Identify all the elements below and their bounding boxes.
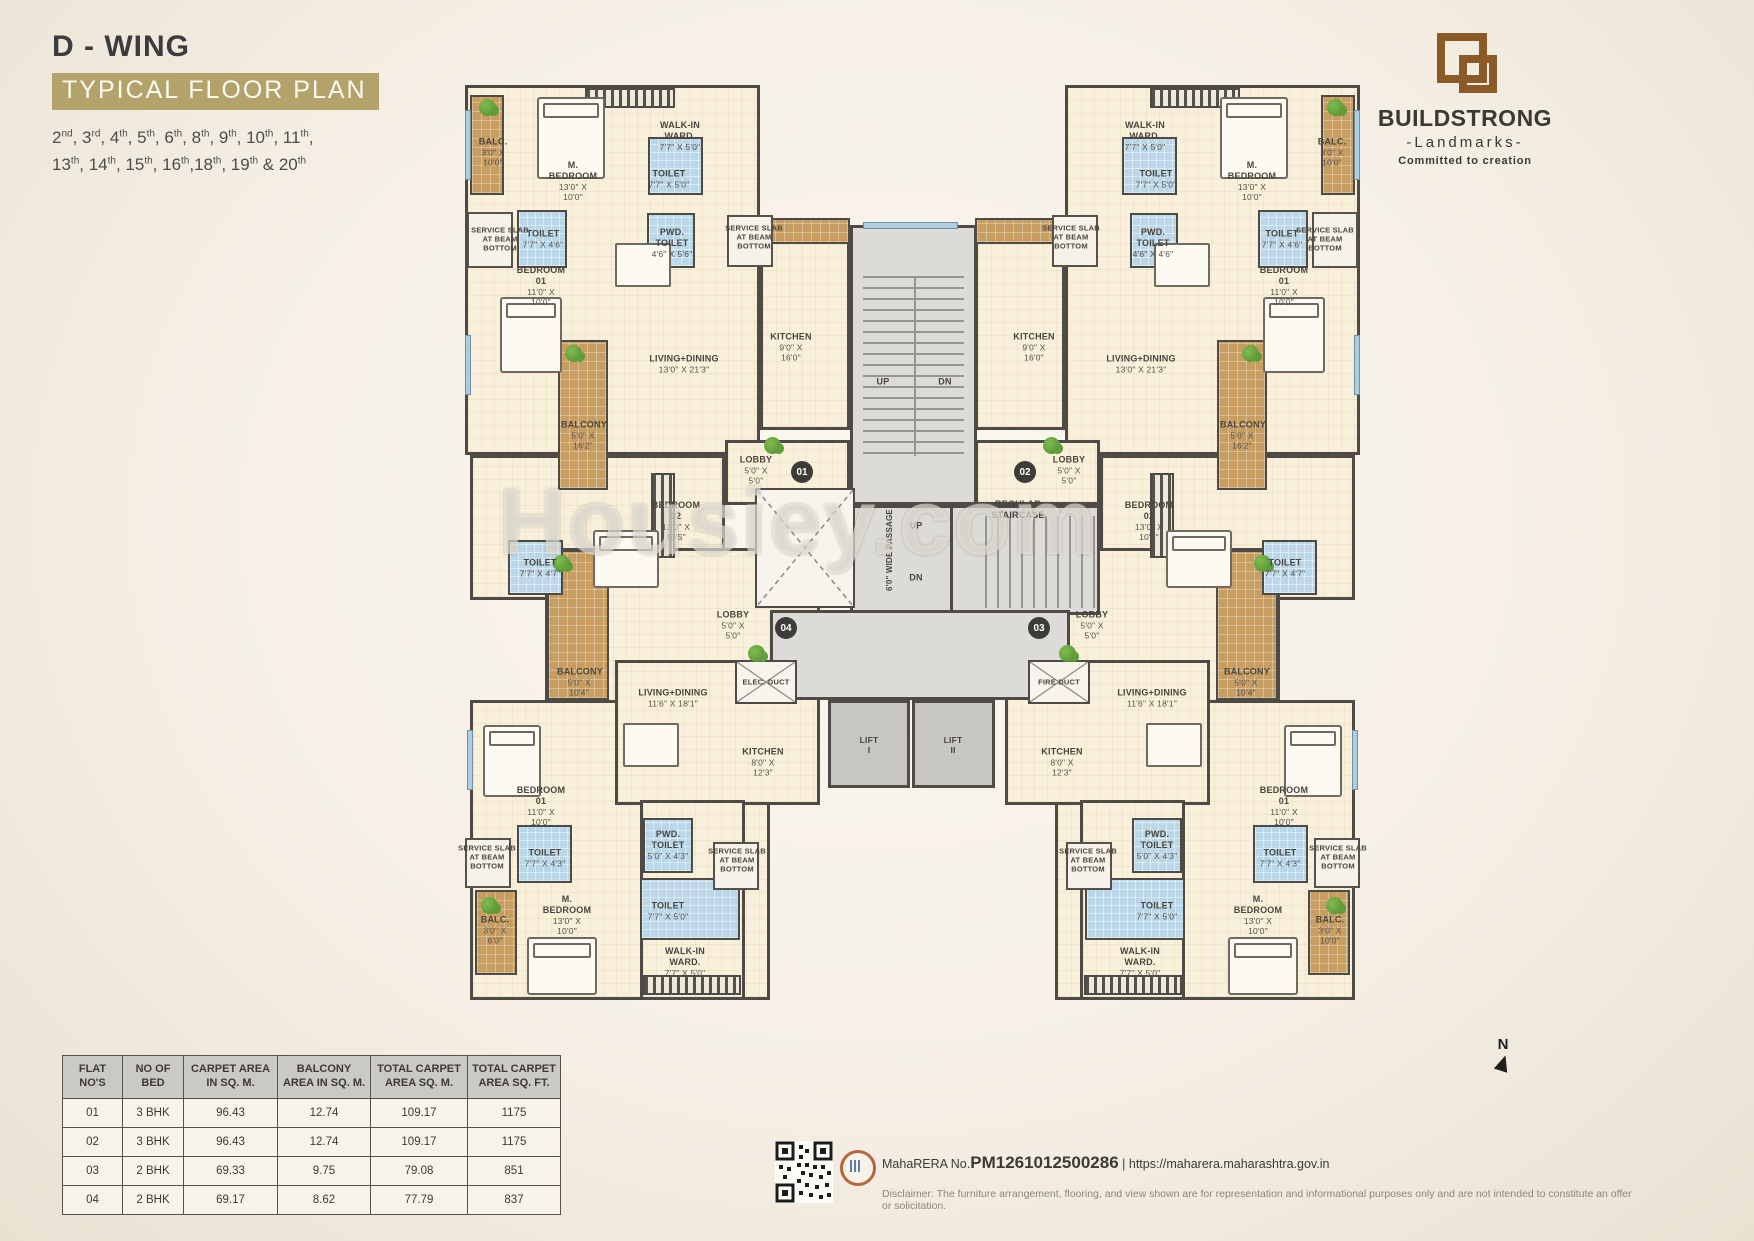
table-row: 013 BHK96.4312.74109.171175 <box>63 1099 561 1128</box>
table-row: 032 BHK69.339.7579.08851 <box>63 1157 561 1186</box>
room-label: UP <box>910 521 923 532</box>
table-cell: 8.62 <box>278 1186 371 1215</box>
planter-icon <box>1043 437 1060 454</box>
room-label: BEDROOM 0213'0" X 10'5" <box>652 500 700 542</box>
dining-table <box>1146 723 1202 767</box>
room-label: REGULAR STAIRCASE <box>978 499 1058 521</box>
table-header-cell: TOTAL CARPET AREA SQ. M. <box>371 1056 468 1099</box>
room-label: TOILET7'7" X 4'7" <box>1263 558 1307 579</box>
room-label: SERVICE SLAB AT BEAM BOTTOM <box>1042 224 1100 251</box>
room-label: TOILET7'7" X 4'7" <box>518 558 562 579</box>
table-cell: 837 <box>468 1186 561 1215</box>
bed <box>593 530 659 588</box>
room-label: LIVING+DINING11'6" X 18'1" <box>1117 688 1186 709</box>
plan-type-banner: TYPICAL FLOOR PLAN <box>52 73 379 110</box>
rera-number: PM1261012500286 <box>970 1153 1118 1172</box>
window <box>1352 730 1358 790</box>
room-label: PWD. TOILET4'6" X 5'6" <box>648 227 696 259</box>
table-cell: 12.74 <box>278 1128 371 1157</box>
room-label: BEDROOM 0111'0" X 10'0" <box>1260 265 1308 307</box>
room-label: TOILET7'7" X 5'0" <box>647 169 691 190</box>
room-label: LOBBY5'0" X 5'0" <box>1076 609 1109 640</box>
table-row: 042 BHK69.178.6277.79837 <box>63 1186 561 1215</box>
room-label: PWD. TOILET5'0" X 4'3" <box>644 829 692 861</box>
north-arrow-icon <box>1494 1053 1512 1073</box>
table-cell: 2 BHK <box>123 1157 184 1186</box>
flat-number-badge: 04 <box>775 617 797 639</box>
bed <box>1263 297 1325 373</box>
room-label: BEDROOM 0111'0" X 10'0" <box>517 265 565 307</box>
rera-prefix: MahaRERA No. <box>882 1157 970 1171</box>
room-label: LIFT II <box>944 735 963 755</box>
room-label: DN <box>938 377 951 388</box>
area-statement-table: FLAT NO'SNO OF BEDCARPET AREA IN SQ. M.B… <box>62 1055 561 1215</box>
room-label: LOBBY5'0" X 5'0" <box>717 609 750 640</box>
floors-line-1: 2nd, 3rd, 4th, 5th, 6th, 8th, 9th, 10th,… <box>52 124 379 151</box>
room-label: M. BEDROOM13'0" X 10'0" <box>1234 894 1282 936</box>
room-label: DN <box>909 573 922 584</box>
table-cell: 69.33 <box>184 1157 278 1186</box>
room-label: M. BEDROOM13'0" X 10'0" <box>549 160 597 202</box>
table-cell: 02 <box>63 1128 123 1157</box>
room-label: PWD. TOILET4'6" X 4'6" <box>1129 227 1177 259</box>
table-cell: 03 <box>63 1157 123 1186</box>
room-label: BALC.3'0" X 10'0" <box>1312 136 1352 167</box>
room-label: SERVICE SLAB AT BEAM BOTTOM <box>458 844 516 871</box>
table-cell: 96.43 <box>184 1128 278 1157</box>
planter-icon <box>479 99 496 116</box>
bed <box>500 297 562 373</box>
room-label: BEDROOM 0111'0" X 10'0" <box>1260 785 1308 827</box>
room-label: FIRE DUCT <box>1024 678 1094 687</box>
table-cell: 3 BHK <box>123 1128 184 1157</box>
room-label: KITCHEN8'0" X 12'3" <box>1041 746 1082 777</box>
room-label: M. BEDROOM13'0" X 10'0" <box>543 894 591 936</box>
planter-icon <box>1326 897 1343 914</box>
room-label: BEDROOM 0111'0" X 10'0" <box>517 785 565 827</box>
rera-line: MahaRERA No.PM1261012500286 | https://ma… <box>882 1153 1329 1173</box>
window <box>863 222 958 229</box>
room-label: LOBBY5'0" X 5'0" <box>1053 454 1086 485</box>
table-cell: 109.17 <box>371 1128 468 1157</box>
window <box>1354 110 1360 180</box>
room-label: SERVICE SLAB AT BEAM BOTTOM <box>1309 844 1367 871</box>
lift-shaft <box>755 488 855 608</box>
table-header-cell: NO OF BED <box>123 1056 184 1099</box>
table-cell: 1175 <box>468 1099 561 1128</box>
table-header-cell: FLAT NO'S <box>63 1056 123 1099</box>
floor-plan-sheet: D - WING TYPICAL FLOOR PLAN 2nd, 3rd, 4t… <box>0 0 1754 1241</box>
table-cell: 2 BHK <box>123 1186 184 1215</box>
bed <box>1228 937 1298 995</box>
lift-lobby <box>770 610 1070 700</box>
room-label: M. BEDROOM13'0" X 10'0" <box>1228 160 1276 202</box>
regular-staircase <box>950 505 1100 615</box>
table-cell: 96.43 <box>184 1099 278 1128</box>
flat-number-badge: 01 <box>791 461 813 483</box>
north-label: N <box>1496 1036 1510 1053</box>
table-cell: 109.17 <box>371 1099 468 1128</box>
table-header-cell: TOTAL CARPET AREA SQ. FT. <box>468 1056 561 1099</box>
flat01-balcony-main <box>558 340 608 490</box>
room-label: PWD. TOILET5'0" X 4'3" <box>1133 829 1181 861</box>
table-cell: 69.17 <box>184 1186 278 1215</box>
room-label: WALK-IN WARD.7'7" X 5'0" <box>1109 946 1171 978</box>
table-cell: 79.08 <box>371 1157 468 1186</box>
planter-icon <box>1327 99 1344 116</box>
room-label: ELEC. DUCT <box>731 678 801 687</box>
main-staircase <box>850 225 977 505</box>
room-label: BALCONY5'0" X 16'2" <box>1220 419 1264 450</box>
planter-icon <box>1059 645 1076 662</box>
disclaimer-text: Disclaimer: The furniture arrangement, f… <box>882 1188 1642 1212</box>
room-label: LOBBY5'0" X 5'0" <box>740 454 773 485</box>
room-label: SERVICE SLAB AT BEAM BOTTOM <box>1296 226 1354 253</box>
flat01-kitchen-wing <box>760 230 850 430</box>
room-label: SERVICE SLAB AT BEAM BOTTOM <box>725 224 783 251</box>
window <box>465 110 471 180</box>
planter-icon <box>565 345 582 362</box>
floors-line-2: 13th, 14th, 15th, 16th,18th, 19th & 20th <box>52 151 379 178</box>
table-header-cell: CARPET AREA IN SQ. M. <box>184 1056 278 1099</box>
wing-title: D - WING <box>52 30 379 64</box>
room-label: BALCONY5'0" X 16'2" <box>561 419 605 450</box>
room-label: 6'0" WIDE PASSAGE <box>885 450 895 650</box>
room-label: TOILET7'7" X 5'0" <box>646 901 690 922</box>
dining-table <box>623 723 679 767</box>
title-block: D - WING TYPICAL FLOOR PLAN 2nd, 3rd, 4t… <box>52 30 379 178</box>
room-label: BALC.3'0" X 10'0" <box>1312 914 1348 945</box>
room-label: SERVICE SLAB AT BEAM BOTTOM <box>708 847 766 874</box>
room-label: UP <box>877 377 890 388</box>
table-cell: 12.74 <box>278 1099 371 1128</box>
window <box>1354 335 1360 395</box>
rera-url[interactable]: https://maharera.maharashtra.gov.in <box>1129 1157 1330 1171</box>
room-label: BALCONY5'0" X 10'4" <box>1224 666 1268 697</box>
planter-icon <box>1242 345 1259 362</box>
room-label: TOILET7'7" X 4'3" <box>1258 848 1302 869</box>
room-label: KITCHEN8'0" X 12'3" <box>742 746 783 777</box>
table-header-cell: BALCONY AREA IN SQ. M. <box>278 1056 371 1099</box>
table-cell: 851 <box>468 1157 561 1186</box>
flat03-wardrobe-hatch <box>1084 975 1182 995</box>
planter-icon <box>481 897 498 914</box>
table-row: 023 BHK96.4312.74109.171175 <box>63 1128 561 1157</box>
table-cell: 01 <box>63 1099 123 1128</box>
brand-name: BUILDSTRONG <box>1375 105 1555 132</box>
table-cell: 04 <box>63 1186 123 1215</box>
table-header-row: FLAT NO'SNO OF BEDCARPET AREA IN SQ. M.B… <box>63 1056 561 1099</box>
room-label: LIVING+DINING13'0" X 21'3" <box>649 354 718 375</box>
buildstrong-logo-icon <box>1433 33 1497 97</box>
table-cell: 77.79 <box>371 1186 468 1215</box>
window <box>465 335 471 395</box>
room-label: KITCHEN9'0" X 16'0" <box>770 331 811 362</box>
flat04-wardrobe-hatch <box>643 975 741 995</box>
floors-list: 2nd, 3rd, 4th, 5th, 6th, 8th, 9th, 10th,… <box>52 124 379 178</box>
table-cell: 9.75 <box>278 1157 371 1186</box>
logo-square-inner <box>1459 55 1497 93</box>
planter-icon <box>748 645 765 662</box>
table-cell: 3 BHK <box>123 1099 184 1128</box>
room-label: BALC.3'0" X 10'0" <box>473 136 513 167</box>
room-label: BALCONY5'0" X 10'4" <box>557 666 601 697</box>
room-label: KITCHEN9'0" X 16'0" <box>1013 331 1054 362</box>
qr-code <box>775 1141 833 1203</box>
room-label: TOILET7'7" X 4'3" <box>523 848 567 869</box>
floor-plan-drawing: BALC.3'0" X 10'0"M. BEDROOM13'0" X 10'0"… <box>465 85 1360 1000</box>
room-label: TOILET7'7" X 4'6" <box>521 229 565 250</box>
room-label: WALK-IN WARD.7'7" X 5'0" <box>650 120 710 152</box>
window <box>467 730 473 790</box>
table-cell: 1175 <box>468 1128 561 1157</box>
north-compass: N <box>1496 1036 1510 1071</box>
flat-number-badge: 03 <box>1028 617 1050 639</box>
room-label: WALK-IN WARD.7'7" X 5'0" <box>654 946 716 978</box>
bed <box>527 937 597 995</box>
room-label: BALC.3'0" X 6'0" <box>477 914 513 945</box>
bed <box>1166 530 1232 588</box>
brand-subtitle: -Landmarks- <box>1375 134 1555 151</box>
flat-number-badge: 02 <box>1014 461 1036 483</box>
room-label: LIVING+DINING11'6" X 18'1" <box>638 688 707 709</box>
room-label: TOILET7'7" X 4'6" <box>1260 229 1304 250</box>
brand-tagline: Committed to creation <box>1375 155 1555 167</box>
brand-block: BUILDSTRONG -Landmarks- Committed to cre… <box>1375 33 1555 167</box>
room-label: BEDROOM 0213'0" X 10'5" <box>1125 500 1173 542</box>
room-label: TOILET7'7" X 5'0" <box>1135 901 1179 922</box>
room-label: SERVICE SLAB AT BEAM BOTTOM <box>1059 847 1117 874</box>
room-label: LIVING+DINING13'0" X 21'3" <box>1106 354 1175 375</box>
room-label: WALK-IN WARD.7'7" X 5'0" <box>1115 120 1175 152</box>
planter-icon <box>764 437 781 454</box>
room-label: TOILET7'7" X 5'0" <box>1134 169 1178 190</box>
rera-separator: | <box>1122 1157 1125 1171</box>
flat02-balcony-main <box>1217 340 1267 490</box>
room-label: LIFT I <box>860 735 879 755</box>
maharera-seal-icon <box>840 1150 876 1186</box>
